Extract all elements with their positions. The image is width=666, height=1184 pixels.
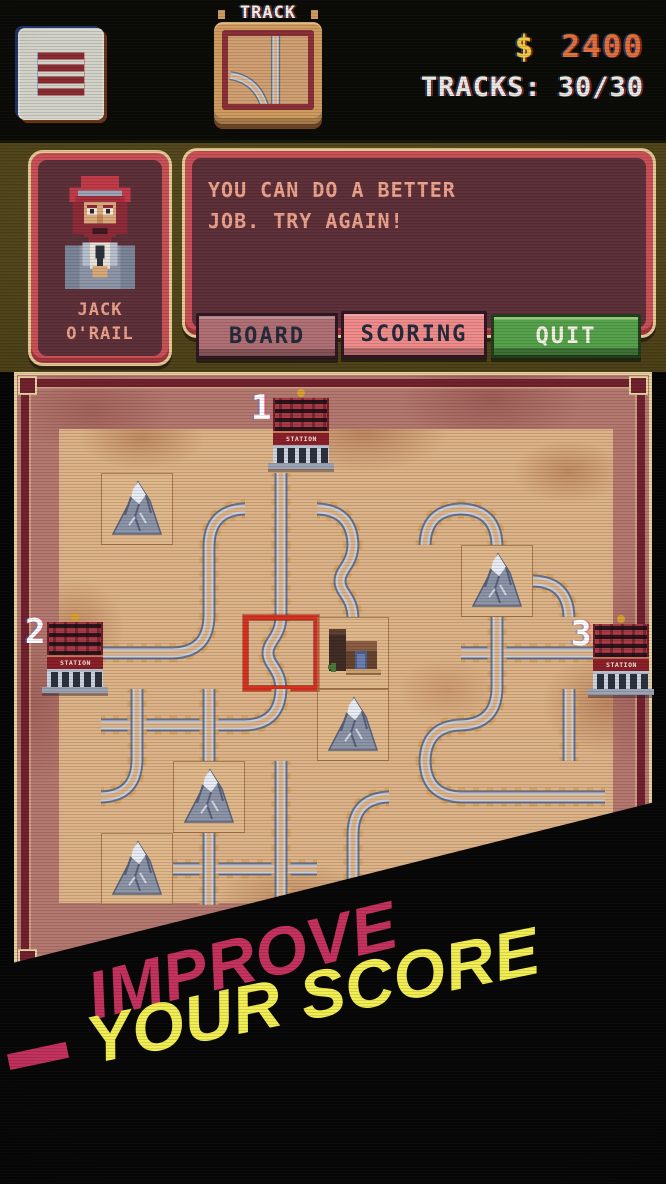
board-tile-empty[interactable] — [533, 473, 605, 545]
station-building-icon: STATION — [273, 389, 329, 469]
station-number: 2 — [25, 615, 45, 649]
tracks-value: 30/30 — [558, 74, 644, 101]
mountain-tile[interactable] — [101, 473, 173, 545]
board-tile-c-sw[interactable] — [317, 473, 389, 545]
station-number: 3 — [571, 617, 591, 651]
top-hud: TRACK $ 2400 TRACKS: 30/30 — [0, 0, 666, 143]
track-panel-label: TRACK — [214, 5, 322, 22]
tracks-label: TRACKS: — [421, 74, 542, 101]
hamburger-icon — [38, 53, 84, 96]
board-tile-c-sw[interactable] — [461, 473, 533, 545]
board-button[interactable]: BOARD — [196, 313, 338, 359]
dollar-icon: $ — [515, 32, 536, 63]
board-tile-v[interactable] — [245, 761, 317, 833]
board-tile-x[interactable] — [461, 617, 533, 689]
board-tile-empty[interactable] — [389, 545, 461, 617]
track-icon — [222, 30, 314, 110]
selected-tile-highlight[interactable] — [245, 617, 317, 689]
board-tile-c-ne[interactable] — [389, 761, 461, 833]
board-tile-c-se[interactable] — [317, 761, 389, 833]
board-tile-x[interactable] — [101, 689, 173, 761]
money-display: $ 2400 — [515, 32, 644, 63]
frame-corner — [18, 376, 37, 395]
board-tile-h[interactable] — [461, 761, 533, 833]
money-value: 2400 — [561, 32, 644, 63]
tracks-counter: TRACKS: 30/30 — [421, 74, 644, 101]
board-tile-c-se[interactable] — [389, 473, 461, 545]
board-tile-c-nw[interactable] — [173, 617, 245, 689]
board-tile-s[interactable] — [317, 545, 389, 617]
mountain-tile[interactable] — [317, 689, 389, 761]
mountain-tile[interactable] — [461, 545, 533, 617]
banner-dash — [7, 1042, 69, 1070]
board-tile-v[interactable] — [245, 473, 317, 545]
mountain-tile[interactable] — [101, 833, 173, 905]
board-tile-empty[interactable] — [389, 617, 461, 689]
board-tile-c-sw[interactable] — [533, 545, 605, 617]
station-1: 1 STATION — [251, 389, 329, 469]
board-tile-c-nw[interactable] — [461, 689, 533, 761]
board-tile-x[interactable] — [173, 689, 245, 761]
track-inventory-panel[interactable]: TRACK — [214, 22, 322, 124]
game-screen: TRACK $ 2400 TRACKS: 30/30 JACK O'RAIL — [0, 0, 666, 1184]
speech-text: YOU CAN DO A BETTER JOB. TRY AGAIN! — [192, 158, 646, 237]
dialog-section: JACK O'RAIL YOU CAN DO A BETTER JOB. TRY… — [0, 140, 666, 372]
portrait-name: JACK O'RAIL — [38, 299, 162, 347]
board-tile-h[interactable] — [101, 617, 173, 689]
board-tile-x[interactable] — [173, 833, 245, 905]
speech-panel: YOU CAN DO A BETTER JOB. TRY AGAIN! — [182, 148, 656, 338]
jack-orail-avatar — [50, 170, 150, 292]
station-number: 1 — [251, 391, 271, 425]
board-tile-c-se[interactable] — [389, 689, 461, 761]
board-tile-c-se[interactable] — [173, 473, 245, 545]
house-tile[interactable] — [317, 617, 389, 689]
station-building-icon: STATION — [47, 613, 103, 693]
board-tile-c-nw[interactable] — [245, 689, 317, 761]
menu-button[interactable] — [18, 28, 104, 120]
station-2: 2 STATION — [25, 613, 103, 693]
station-3: 3 STATION — [571, 615, 649, 695]
board-tile-empty[interactable] — [101, 545, 173, 617]
station-sign: STATION — [593, 657, 649, 671]
station-sign: STATION — [273, 431, 329, 445]
quit-button[interactable]: QUIT — [491, 314, 641, 358]
scoring-button[interactable]: SCORING — [341, 311, 487, 358]
frame-corner — [629, 376, 648, 395]
portrait-panel: JACK O'RAIL — [28, 150, 172, 366]
board-tile-v[interactable] — [245, 545, 317, 617]
mountain-tile[interactable] — [173, 761, 245, 833]
board-tile-v[interactable] — [173, 545, 245, 617]
board-tile-v[interactable] — [533, 689, 605, 761]
station-sign: STATION — [47, 655, 103, 669]
station-building-icon: STATION — [593, 615, 649, 695]
board-tile-c-nw[interactable] — [101, 761, 173, 833]
